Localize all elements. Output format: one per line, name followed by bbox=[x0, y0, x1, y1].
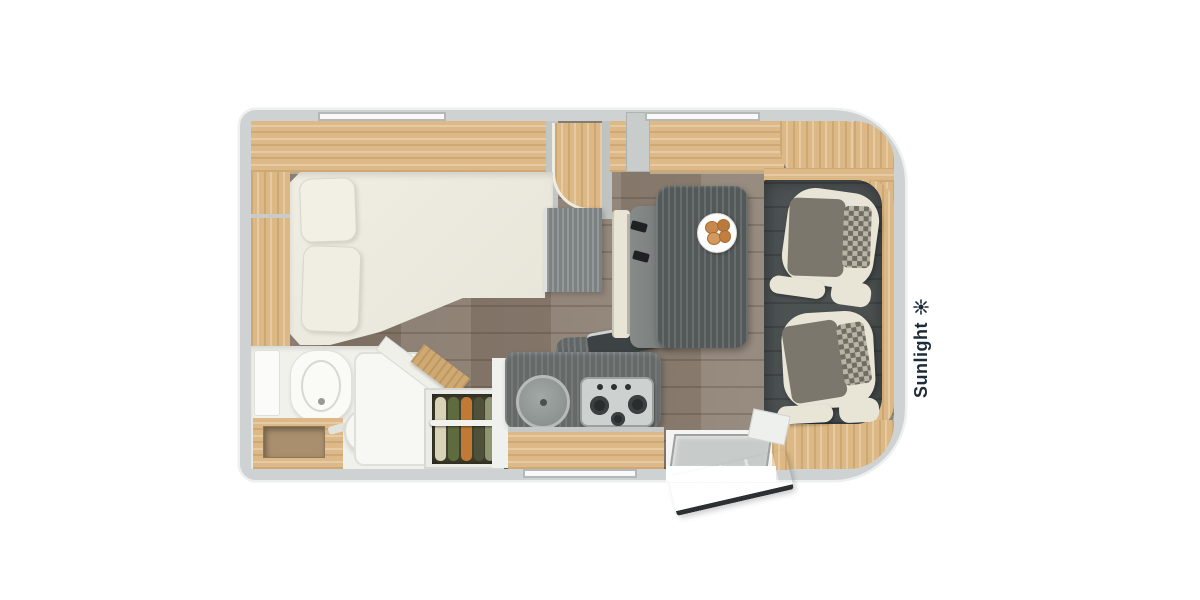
overhead-cabinet-rear bbox=[251, 121, 548, 174]
hob-knob-2 bbox=[611, 384, 617, 390]
croissant-4 bbox=[719, 230, 731, 243]
vanity-recess bbox=[263, 426, 325, 458]
driver-seat-cushion bbox=[830, 279, 873, 308]
hob-knob-3 bbox=[625, 384, 631, 390]
pillow-2 bbox=[301, 245, 362, 333]
brand-logo: Sunlight bbox=[910, 228, 932, 398]
driver-seat bbox=[767, 183, 887, 314]
pillow-1 bbox=[299, 177, 357, 243]
hanging-garment-3 bbox=[461, 397, 472, 461]
driver-seat-checker-panel bbox=[842, 206, 872, 269]
passenger-seat-cushion bbox=[839, 397, 880, 423]
dining-table bbox=[656, 186, 748, 348]
brand-logo-text: Sunlight bbox=[911, 322, 932, 398]
sink-drain bbox=[540, 399, 547, 406]
rear-shelf-divider bbox=[251, 214, 290, 218]
hob-burner-right bbox=[628, 395, 647, 414]
hanging-garment-2 bbox=[448, 397, 459, 461]
sun-burst-icon bbox=[913, 299, 929, 315]
hob-knob-1 bbox=[597, 384, 603, 390]
hanging-garment-1 bbox=[435, 397, 446, 461]
toilet-flush-button bbox=[318, 398, 325, 405]
rear-shelf bbox=[251, 172, 290, 348]
hanging-rail bbox=[430, 420, 500, 426]
window-top-right bbox=[645, 112, 760, 121]
passenger-seat bbox=[772, 309, 883, 432]
overhead-cabinet-front bbox=[650, 121, 784, 174]
tall-cabinet-fridge bbox=[544, 208, 602, 292]
vent-column bbox=[626, 112, 650, 172]
window-bottom bbox=[523, 469, 637, 478]
bathroom-cistern-cabinet bbox=[254, 350, 280, 416]
kitchen-drawer-front bbox=[508, 427, 664, 469]
driver-seat-back-panel bbox=[787, 197, 846, 277]
window-top-left bbox=[318, 112, 446, 121]
hob-burner-left bbox=[590, 396, 609, 415]
hob-burner-small bbox=[611, 412, 625, 426]
floorplan-canvas: Sunlight bbox=[0, 0, 1200, 600]
hanging-garment-4 bbox=[474, 397, 484, 461]
